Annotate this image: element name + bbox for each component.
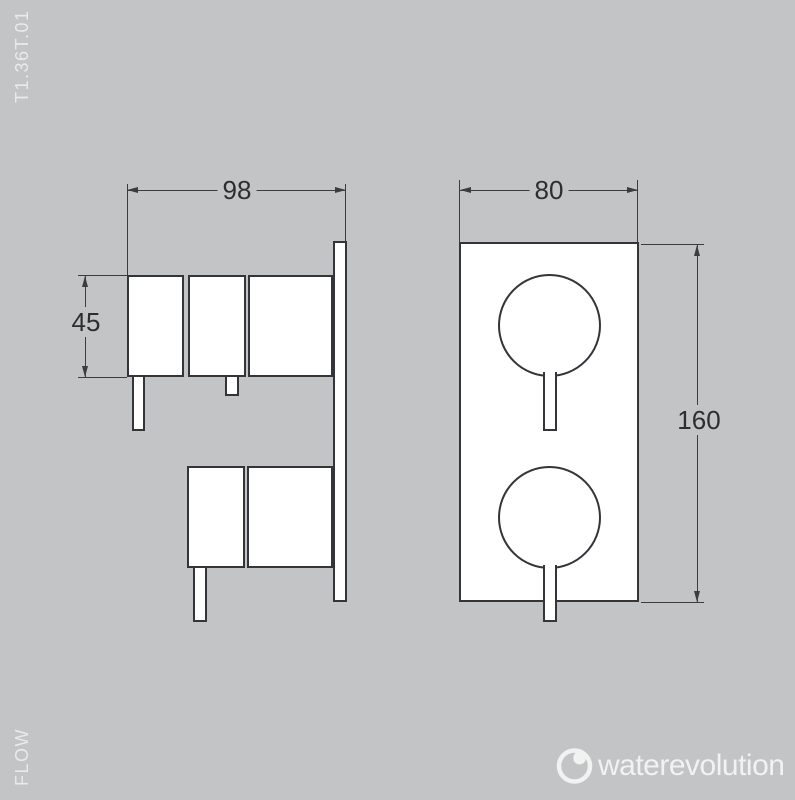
- lower-lever-side: [193, 568, 207, 622]
- arrowhead-98-left-icon: [127, 187, 138, 193]
- arrowhead-80-right-icon: [627, 187, 638, 193]
- arrowhead-160-down-icon: [694, 591, 700, 602]
- arrowhead-80-left-icon: [460, 187, 471, 193]
- series-label: FLOW: [11, 728, 33, 786]
- dim-label-depth: 98: [218, 177, 257, 203]
- arrowhead-45-down-icon: [82, 366, 88, 377]
- lower-handle-knob-side: [187, 466, 245, 568]
- upper-handle-knob-side: [127, 275, 184, 377]
- upper-knob-front: [498, 274, 601, 377]
- dim-label-plate-height: 160: [674, 405, 723, 435]
- brand-name: waterevolution: [598, 751, 784, 781]
- brand-logo: waterevolution: [554, 745, 784, 786]
- dim-label-handle-height: 45: [69, 307, 104, 337]
- product-code-label: T1.36T.01: [11, 9, 33, 103]
- water-drop-ring-icon: [554, 745, 595, 786]
- ext-line-98-left: [127, 184, 128, 275]
- upper-lever-front: [543, 372, 557, 431]
- upper-lever-front-side: [132, 377, 145, 431]
- arrowhead-160-up-icon: [694, 245, 700, 256]
- upper-handle-collar-side: [188, 275, 246, 377]
- ext-line-45-bottom: [78, 377, 127, 378]
- lower-lever-front: [543, 565, 557, 622]
- dim-label-plate-width: 80: [530, 177, 569, 203]
- upper-lever-rear-side: [225, 377, 239, 396]
- lower-handle-base-side: [247, 466, 333, 568]
- arrowhead-98-right-icon: [335, 187, 346, 193]
- drawing-canvas: T1.36T.01 FLOW 98 45: [0, 0, 795, 800]
- upper-handle-base-side: [248, 275, 334, 377]
- ext-line-160-bottom: [641, 602, 704, 603]
- wall-plate-side: [333, 241, 347, 602]
- arrowhead-45-up-icon: [82, 276, 88, 287]
- lower-knob-front: [498, 466, 601, 569]
